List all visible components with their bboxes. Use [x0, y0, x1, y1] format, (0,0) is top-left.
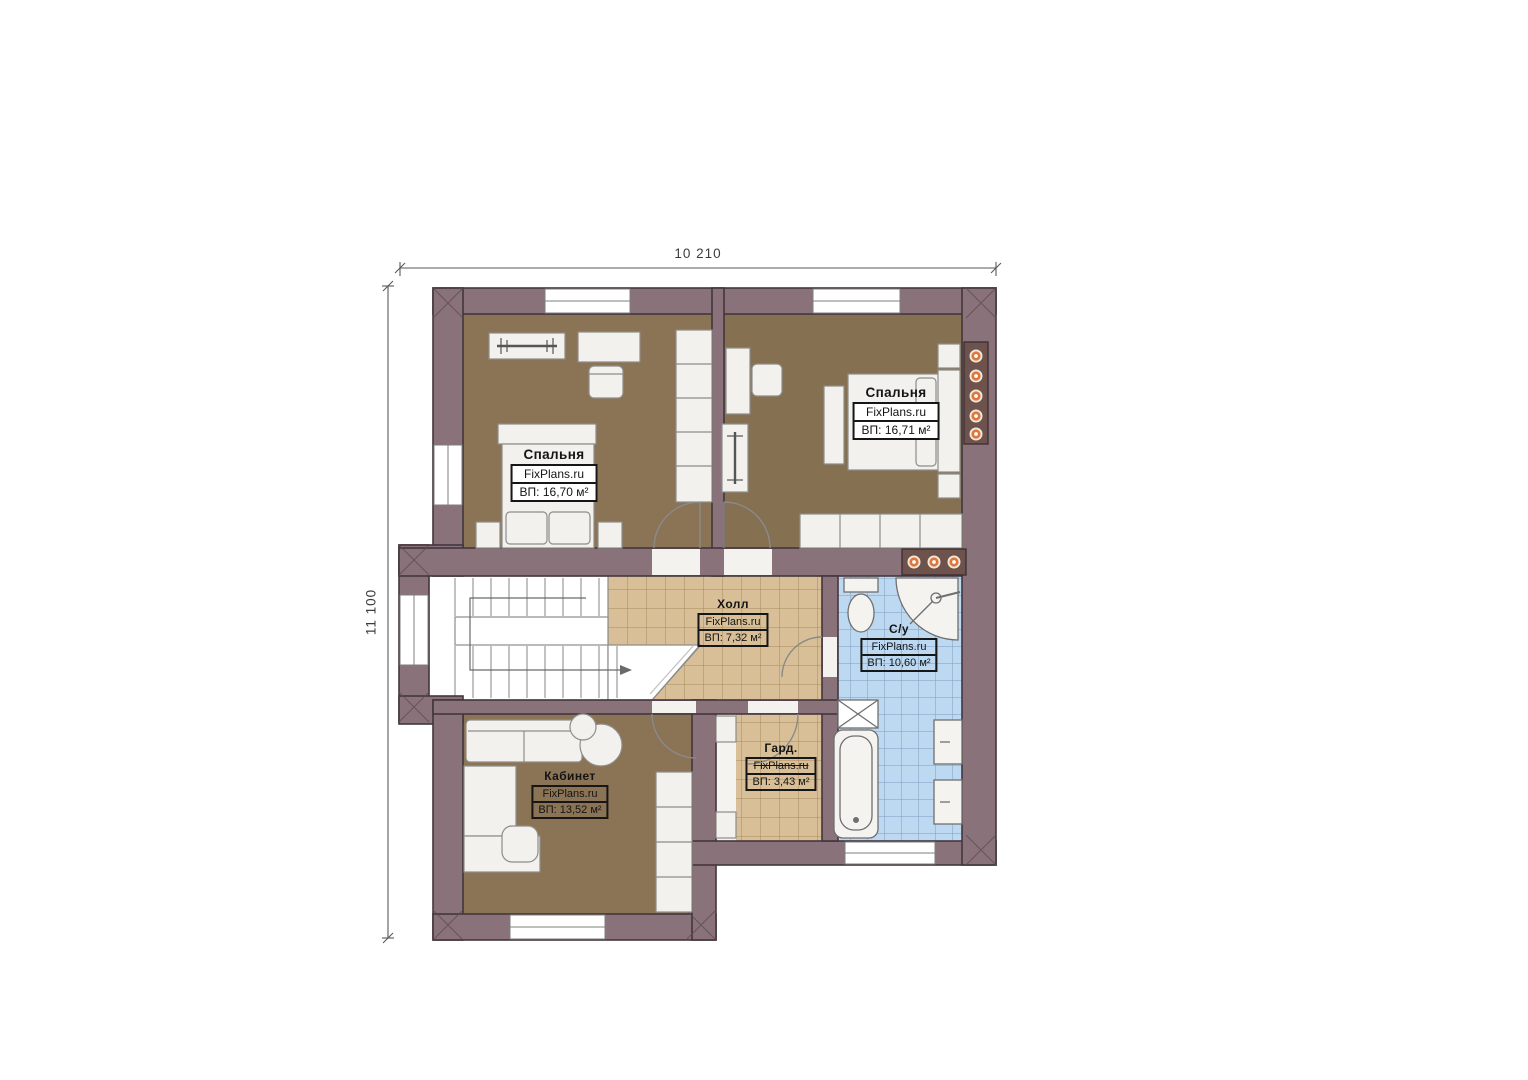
wall-bottom-right-section: [692, 841, 996, 865]
nightstand-icon: [938, 344, 960, 368]
watermark-text: FixPlans.ru: [699, 615, 766, 631]
room-label-box: FixPlans.ru ВП: 10,60 м²: [860, 638, 937, 672]
room-area: ВП: 16,70 м²: [513, 484, 596, 500]
nightstand-icon: [476, 522, 500, 548]
dresser-icon: [578, 332, 640, 362]
wall-office-right: [692, 700, 716, 940]
watermark-text: FixPlans.ru: [533, 787, 606, 803]
threshold-bedroom-right: [724, 549, 772, 575]
threshold-office: [652, 701, 696, 713]
room-area: ВП: 10,60 м²: [862, 656, 935, 670]
room-name: Холл: [717, 597, 749, 611]
room-label-wardrobe: Гард. FixPlans.ru ВП: 3,43 м²: [745, 741, 816, 791]
room-label-box: FixPlans.ru ВП: 13,52 м²: [531, 785, 608, 819]
cabinet-icon: [726, 348, 750, 414]
room-label-box: FixPlans.ru ВП: 7,32 м²: [697, 613, 768, 647]
shelf-icon: [716, 716, 736, 742]
room-name: Спальня: [865, 385, 926, 400]
room-label-office: Кабинет FixPlans.ru ВП: 13,52 м²: [531, 769, 608, 819]
watermark-text: FixPlans.ru: [862, 640, 935, 656]
chair-icon: [589, 366, 623, 398]
toilet-tank-icon: [844, 578, 878, 592]
room-name: С/у: [889, 622, 909, 636]
threshold-bathroom: [823, 637, 837, 677]
floor-plan-canvas: [0, 0, 1528, 1080]
wardrobe-row-icon: [800, 514, 962, 548]
room-label-box: FixPlans.ru ВП: 3,43 м²: [745, 757, 816, 791]
chair-icon: [752, 364, 782, 396]
room-label-hall: Холл FixPlans.ru ВП: 7,32 м²: [697, 597, 768, 647]
room-name: Кабинет: [544, 769, 595, 783]
desk-icon: [464, 766, 516, 836]
watermark-text: FixPlans.ru: [747, 759, 814, 775]
armchair-back-icon: [570, 714, 596, 740]
room-name: Спальня: [523, 447, 584, 462]
nightstand-icon: [938, 474, 960, 498]
dimension-height-label: 11 100: [364, 589, 379, 635]
wardrobe-cabinet-icon: [676, 330, 712, 502]
room-area: ВП: 7,32 м²: [699, 631, 766, 645]
room-label-bedroom-left: Спальня FixPlans.ru ВП: 16,70 м²: [511, 447, 598, 502]
threshold-wardrobe: [748, 701, 798, 713]
stairs-rail: [455, 617, 608, 645]
pillow-icon: [549, 512, 590, 544]
bench-icon: [824, 386, 844, 464]
room-label-box: FixPlans.ru ВП: 16,71 м²: [853, 402, 940, 440]
room-area: ВП: 16,71 м²: [855, 422, 938, 438]
bed-headboard-icon: [938, 370, 960, 472]
spotlight-icons: [908, 556, 961, 569]
room-label-bedroom-right: Спальня FixPlans.ru ВП: 16,71 м²: [853, 385, 940, 440]
room-area: ВП: 13,52 м²: [533, 803, 606, 817]
wall-left-upper: [433, 288, 463, 576]
floor-plan-page: 10 210 11 100 Спальня FixPlans.ru ВП: 16…: [0, 0, 1528, 1080]
room-area: ВП: 3,43 м²: [747, 775, 814, 789]
room-label-box: FixPlans.ru ВП: 16,70 м²: [511, 464, 598, 502]
watermark-text: FixPlans.ru: [513, 466, 596, 484]
room-label-bathroom: С/у FixPlans.ru ВП: 10,60 м²: [860, 622, 937, 672]
watermark-text: FixPlans.ru: [855, 404, 938, 422]
nightstand-icon: [598, 522, 622, 548]
wall-left-lower: [433, 700, 463, 940]
pillow-icon: [506, 512, 547, 544]
desk-chair-icon: [502, 826, 538, 862]
threshold-bedroom-left: [652, 549, 700, 575]
bed-headboard-shelf-icon: [498, 424, 596, 444]
room-name: Гард.: [764, 741, 797, 755]
shelf-icon: [716, 812, 736, 838]
dimension-width-label: 10 210: [674, 246, 721, 261]
